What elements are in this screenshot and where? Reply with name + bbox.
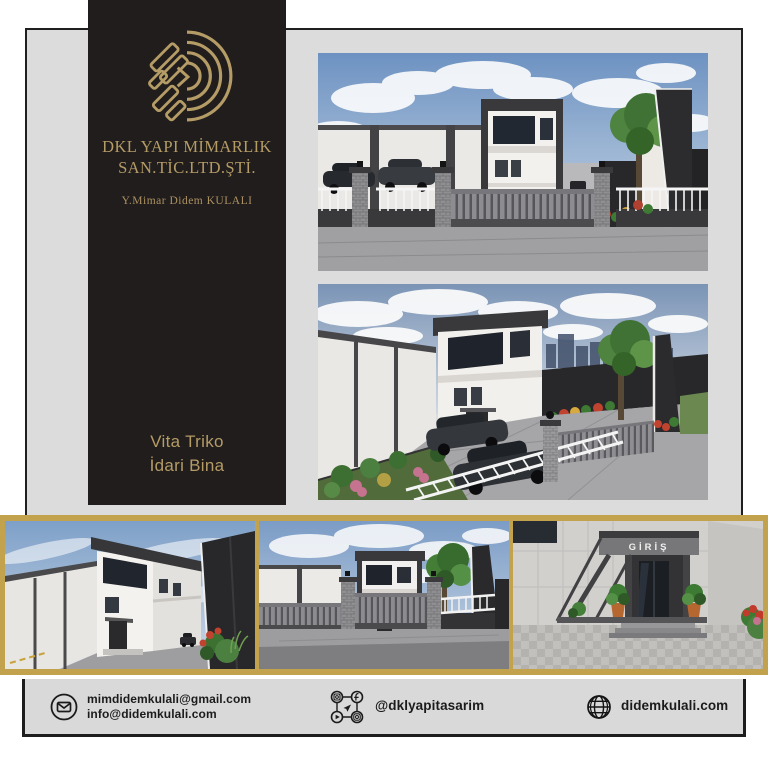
envelope-icon — [49, 692, 79, 722]
company-logo-icon — [129, 20, 245, 132]
social-network-icon — [327, 687, 367, 727]
brand-panel: DKL YAPI MİMARLIK SAN.TİC.LTD.ŞTİ. Y.Mim… — [88, 0, 286, 505]
email-line1[interactable]: mimdidemkulali@gmail.com — [87, 692, 251, 707]
project-title-line1: Vita Triko — [88, 430, 286, 455]
thumb-gate-view — [259, 521, 509, 669]
thumb-entrance-view: GİRİŞ — [513, 521, 763, 669]
project-title-line2: İdari Bina — [88, 454, 286, 479]
render-aerial-perspective — [318, 284, 708, 500]
website-url[interactable]: didemkulali.com — [621, 698, 728, 715]
email-addresses: mimdidemkulali@gmail.com info@didemkulal… — [87, 692, 251, 722]
email-contact: mimdidemkulali@gmail.com info@didemkulal… — [49, 692, 251, 722]
company-name-line1: DKL YAPI MİMARLIK — [102, 136, 272, 157]
thumbnail-strip: GİRİŞ — [0, 515, 768, 675]
footer-bar: mimdidemkulali@gmail.com info@didemkulal… — [22, 679, 746, 737]
project-title: Vita Triko İdari Bina — [88, 430, 286, 479]
social-handle[interactable]: @dklyapitasarim — [375, 698, 484, 715]
company-name-line2: SAN.TİC.LTD.ŞTİ. — [102, 157, 272, 178]
company-name: DKL YAPI MİMARLIK SAN.TİC.LTD.ŞTİ. — [102, 136, 272, 179]
architect-name: Y.Mimar Didem KULALI — [122, 195, 253, 207]
email-line2[interactable]: info@didemkulali.com — [87, 707, 251, 722]
globe-icon — [585, 693, 613, 721]
render-front-elevation — [318, 53, 708, 271]
thumb-corner-view — [5, 521, 255, 669]
website-contact: didemkulali.com — [585, 693, 728, 721]
entrance-sign-label: GİRİŞ — [629, 542, 670, 553]
social-contact: @dklyapitasarim — [327, 687, 484, 727]
